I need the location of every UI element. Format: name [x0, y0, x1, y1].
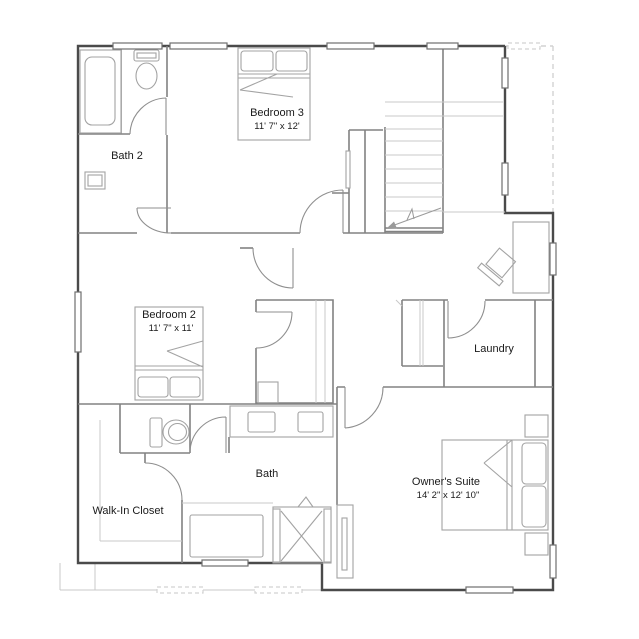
chair-icon	[478, 246, 518, 286]
stairs-icon	[385, 102, 505, 229]
door-laundry	[448, 301, 485, 338]
desk-icon	[513, 222, 549, 293]
nightstand-icon	[525, 533, 548, 555]
door-water-closet	[190, 417, 226, 453]
room-dims-bedroom2: 11' 7" x 11'	[149, 323, 194, 334]
room-dims-bedroom3: 11' 7" x 12'	[254, 121, 300, 132]
room-label-bedroom3: Bedroom 3	[250, 107, 304, 119]
toilet-icon	[134, 50, 159, 89]
floor-plan-drawing: Bath 2 Bedroom 3 11' 7" x 12' Bedroom 2 …	[0, 0, 639, 639]
door-owners-suite	[345, 387, 383, 428]
door-toilet-compartment	[130, 98, 166, 135]
room-label-walk-in-closet: Walk-In Closet	[92, 505, 163, 517]
room-label-bedroom2: Bedroom 2	[142, 309, 196, 321]
room-label-laundry: Laundry	[474, 343, 514, 355]
room-label-bath: Bath	[256, 468, 279, 480]
shower-icon	[273, 497, 331, 563]
room-label-bath2: Bath 2	[111, 150, 143, 162]
double-vanity-icon	[230, 406, 333, 437]
floor-plan-canvas: Bath 2 Bedroom 3 11' 7" x 12' Bedroom 2 …	[0, 0, 639, 639]
room-dims-owners-suite: 14' 2" x 12' 10"	[417, 490, 480, 501]
door-bedroom3	[300, 190, 343, 233]
door-bath2	[137, 208, 171, 233]
toilet-icon-bath	[150, 418, 189, 447]
sink-icon	[85, 172, 105, 189]
door-bedroom2	[253, 248, 293, 288]
nightstand-icon	[525, 415, 548, 437]
linen-cabinet-icon	[337, 505, 353, 578]
door-hall-closet	[256, 312, 292, 348]
door-walk-in-closet	[145, 463, 182, 500]
bathtub-icon-bath	[190, 515, 263, 557]
room-label-owners-suite: Owner's Suite	[412, 476, 480, 488]
bathtub-icon	[80, 50, 121, 133]
